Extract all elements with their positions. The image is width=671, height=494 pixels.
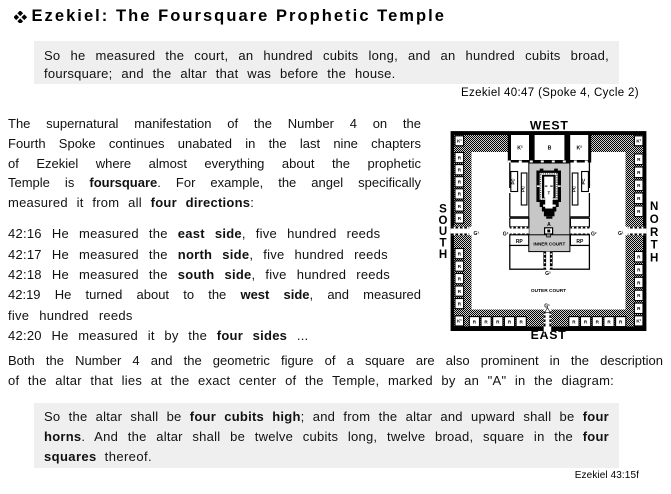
svg-text:T: T xyxy=(547,191,550,196)
svg-text:G¹: G¹ xyxy=(618,231,624,237)
svg-text:PC: PC xyxy=(520,186,525,192)
svg-text:WEST: WEST xyxy=(530,118,569,132)
svg-text:O: O xyxy=(650,214,659,226)
svg-text:G¹: G¹ xyxy=(544,304,550,310)
svg-text:PC: PC xyxy=(571,186,576,192)
svg-text:B: B xyxy=(548,146,552,152)
svg-text:G²: G² xyxy=(503,232,509,238)
svg-text:K²: K² xyxy=(576,146,582,152)
svg-text:G²: G² xyxy=(591,232,597,238)
svg-text:T: T xyxy=(651,240,658,252)
svg-text:OUTER COURT: OUTER COURT xyxy=(531,288,566,294)
svg-text:K²: K² xyxy=(517,146,523,152)
svg-text:N: N xyxy=(650,201,658,213)
svg-text:INNER COURT: INNER COURT xyxy=(533,242,565,247)
svg-text:RP: RP xyxy=(516,239,524,245)
svg-text:K¹: K¹ xyxy=(457,319,462,324)
svg-text:PC: PC xyxy=(510,179,515,185)
svg-text:RP: RP xyxy=(576,239,584,245)
svg-text:H: H xyxy=(439,249,447,261)
svg-text:K¹: K¹ xyxy=(636,319,641,324)
svg-text:R: R xyxy=(650,227,659,239)
svg-text:K¹: K¹ xyxy=(457,139,462,144)
svg-text:G²: G² xyxy=(545,271,551,277)
svg-text:T: T xyxy=(439,238,446,250)
svg-text:S: S xyxy=(439,203,447,215)
svg-text:G¹: G¹ xyxy=(474,231,480,237)
svg-text:PC: PC xyxy=(581,179,586,185)
svg-text:H: H xyxy=(650,252,658,264)
svg-text:K¹: K¹ xyxy=(636,139,641,144)
svg-text:O: O xyxy=(439,215,448,227)
svg-text:A: A xyxy=(547,222,551,228)
svg-text:U: U xyxy=(439,226,447,238)
